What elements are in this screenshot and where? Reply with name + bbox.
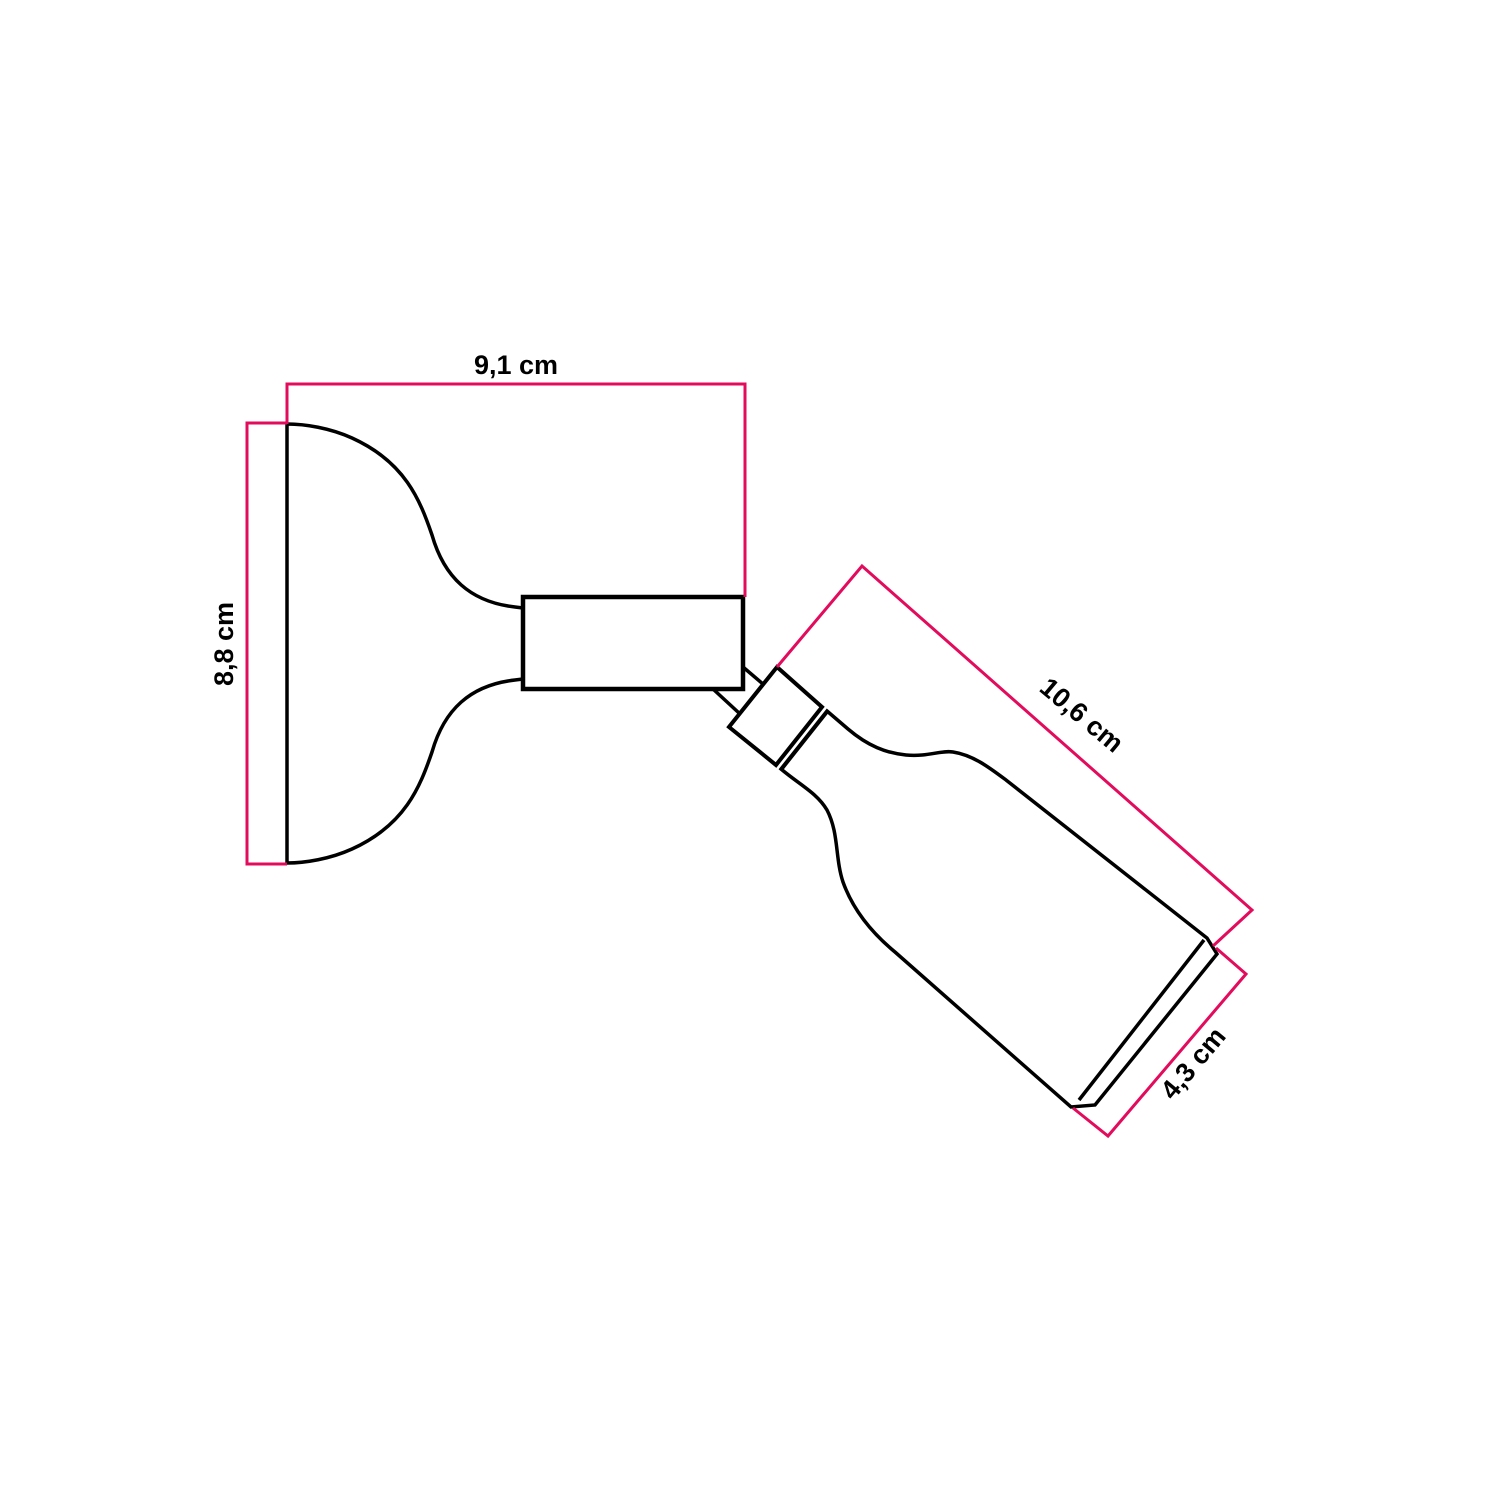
wall-plate-outline [287,424,523,863]
socket-body [523,597,743,689]
dimension-diagram: 9,1 cm 8,8 cm 10,6 cm 4,3 cm [0,0,1500,1500]
fixture-drawing [287,424,1217,1107]
dimension-annotations: 9,1 cm 8,8 cm 10,6 cm 4,3 cm [209,350,1252,1136]
dimension-line-width [287,384,745,597]
dim-label-length: 10,6 cm [1034,672,1129,759]
joint-neck-line-upper [743,667,763,684]
joint-neck-line-lower [713,689,739,713]
dim-label-height: 8,8 cm [209,602,239,686]
lampshade-outline [781,711,1217,1107]
dim-label-width: 9,1 cm [474,350,558,380]
dimension-line-length [777,566,1252,946]
dimension-line-height [247,423,287,864]
